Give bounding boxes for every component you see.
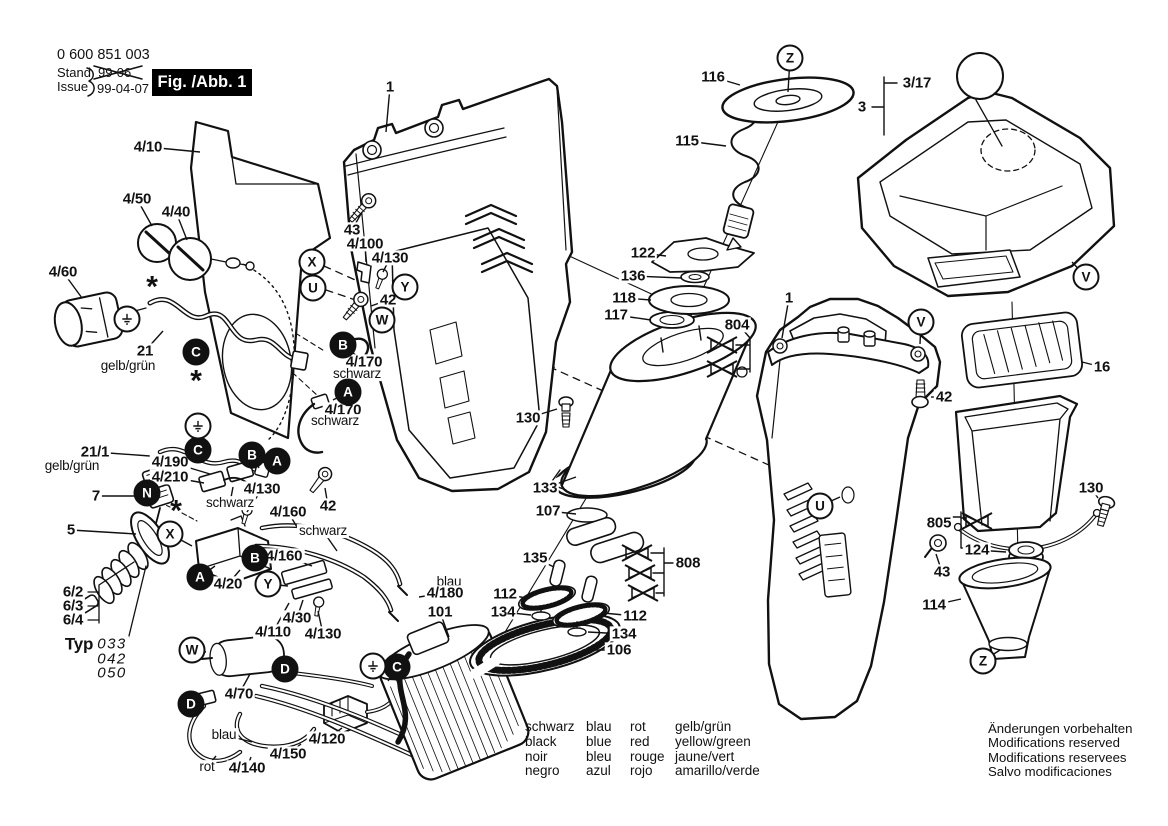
part-label: 1 (783, 290, 795, 305)
figure-badge: Fig. /Abb. 1 (152, 69, 252, 96)
part-label: 106 (605, 642, 633, 657)
legend-cell: rouge (630, 750, 665, 765)
part-label: 130 (1077, 480, 1105, 495)
part-label: 115 (673, 133, 701, 148)
part-label: 4/150 (268, 746, 309, 761)
part-label: 4/60 (47, 264, 79, 279)
part-label: 101 (426, 604, 454, 619)
part-label: 4/120 (307, 731, 348, 746)
legend-cell: amarillo/verde (675, 764, 760, 779)
legend-cell: gelb/grün (675, 720, 760, 735)
callout-circle-u: U (300, 275, 327, 302)
legend-cell: rojo (630, 764, 665, 779)
callout-circle-y: Y (392, 274, 419, 301)
legend-column: rotredrougerojo (630, 720, 665, 779)
callout-circle-b: B (239, 442, 266, 469)
callout-circle-d: D (272, 656, 299, 683)
part-label: 033 (95, 636, 129, 651)
legend-column: blaubluebleuazul (586, 720, 612, 779)
part-label: 130 (514, 410, 542, 425)
part-label: 4/110 (253, 624, 293, 639)
part-label: 117 (602, 307, 630, 322)
part-label: 4/130 (242, 481, 283, 496)
part-label: 16 (1092, 359, 1112, 374)
callout-circle-u: U (807, 493, 834, 520)
part-label: 4/50 (121, 191, 153, 206)
part-label: 1 (384, 79, 396, 94)
part-label: 4/40 (160, 204, 192, 219)
obsolete-mark (625, 565, 655, 581)
legend-cell: noir (525, 750, 575, 765)
part-label: 116 (699, 69, 727, 84)
part-label: 4/10 (132, 139, 164, 154)
part-label: 7 (90, 488, 102, 503)
callout-circle-a: A (264, 448, 291, 475)
leader-lines-layer (0, 0, 1168, 826)
part-label: * (190, 366, 201, 397)
part-label: rot (197, 760, 216, 774)
obsolete-mark (962, 513, 992, 529)
part-label: gelb/grün (99, 359, 158, 373)
callout-circle-c: C (384, 654, 411, 681)
callout-circle-b: B (330, 332, 357, 359)
part-label: 4/180 (425, 585, 466, 600)
ground-icon (185, 413, 212, 440)
part-label: 050 (95, 665, 129, 680)
legend-cell: blau (586, 720, 612, 735)
callout-circle-a: A (335, 379, 362, 406)
part-label: 112 (491, 586, 519, 601)
part-label: schwarz (331, 367, 383, 381)
part-label: 114 (920, 597, 948, 612)
issue-block: Stand Issue (57, 66, 91, 94)
legend-column: gelb/grünyellow/greenjaune/vertamarillo/… (675, 720, 760, 779)
callout-circle-v: V (908, 309, 935, 336)
notice-line: Änderungen vorbehalten (988, 722, 1132, 736)
color-legend: schwarzblacknoirnegroblaubluebleuazulrot… (525, 720, 785, 782)
callout-circle-c: C (185, 437, 212, 464)
part-number: 0 600 851 003 (57, 47, 150, 63)
part-label: * (146, 272, 157, 303)
part-label: 133 (531, 480, 559, 495)
part-label: 135 (521, 550, 549, 565)
ground-icon (360, 653, 387, 680)
part-label: 4/140 (227, 760, 268, 775)
part-label: 5 (65, 522, 77, 537)
callout-circle-z: Z (777, 45, 804, 72)
part-label: 4/130 (370, 250, 411, 265)
obsolete-mark (707, 337, 737, 353)
part-label: 4/160 (268, 504, 309, 519)
part-label: 112 (621, 608, 649, 623)
callout-circle-w: W (179, 637, 206, 664)
part-label: 134 (610, 626, 638, 641)
part-label: 124 (963, 542, 991, 557)
legend-cell: negro (525, 764, 575, 779)
obsolete-mark (622, 545, 652, 561)
notice-line: Salvo modificaciones (988, 765, 1132, 779)
part-label: 808 (674, 555, 702, 570)
diagram-stage: 0 600 851 003 Stand Issue 99-06 99-04-07… (0, 0, 1168, 826)
callout-circle-a: A (187, 564, 214, 591)
notice-block: Änderungen vorbehaltenModifications rese… (988, 722, 1132, 779)
part-label: 43 (932, 564, 952, 579)
notice-line: Modifications reserved (988, 736, 1132, 750)
part-label: 4/160 (264, 548, 305, 563)
part-label: 3/17 (901, 75, 933, 90)
part-label: 4/130 (303, 626, 344, 641)
callout-circle-n: N (134, 480, 161, 507)
callout-circle-y: Y (255, 571, 282, 598)
notice-line: Modifications reservees (988, 751, 1132, 765)
legend-cell: red (630, 735, 665, 750)
part-label: Typ (63, 635, 95, 652)
part-label: 4/70 (223, 686, 255, 701)
part-label: 136 (619, 268, 647, 283)
legend-cell: bleu (586, 750, 612, 765)
part-label: gelb/grün (43, 459, 102, 473)
part-label: schwarz (297, 524, 349, 538)
legend-cell: yellow/green (675, 735, 760, 750)
part-label: 107 (534, 503, 562, 518)
callout-circle-v: V (1073, 264, 1100, 291)
part-label: schwarz (204, 496, 256, 510)
legend-cell: azul (586, 764, 612, 779)
part-label: 122 (629, 245, 657, 260)
legend-cell: schwarz (525, 720, 575, 735)
part-label: 3 (856, 99, 868, 114)
part-label: 6/4 (61, 612, 85, 627)
part-label: 42 (318, 498, 338, 513)
ground-icon (114, 306, 141, 333)
part-label: 4/20 (212, 576, 244, 591)
callout-circle-d: D (178, 691, 205, 718)
callout-circle-x: X (157, 521, 184, 548)
obsolete-mark (628, 585, 658, 601)
legend-cell: jaune/vert (675, 750, 760, 765)
callout-circle-c: C (183, 339, 210, 366)
leader-line (71, 530, 136, 534)
callout-circle-z: Z (970, 648, 997, 675)
part-label: 804 (723, 317, 751, 332)
legend-cell: black (525, 735, 575, 750)
legend-column: schwarzblacknoirnegro (525, 720, 575, 779)
part-label: 42 (934, 389, 954, 404)
old-issue-date: 99-06 (98, 65, 131, 80)
part-label: 21 (135, 343, 155, 358)
callout-circle-b: B (242, 545, 269, 572)
callout-circle-w: W (369, 307, 396, 334)
issue-label: Issue (57, 80, 91, 94)
obsolete-mark (707, 361, 737, 377)
legend-cell: blue (586, 735, 612, 750)
callout-circle-x: X (299, 249, 326, 276)
stand-label: Stand (57, 66, 91, 80)
issue-date: 99-04-07 (97, 81, 149, 96)
part-label: 118 (610, 290, 638, 305)
part-label: 134 (489, 604, 517, 619)
part-label: schwarz (309, 414, 361, 428)
part-label: blau (210, 728, 239, 742)
part-label: 4/190 (150, 454, 191, 469)
part-label: 805 (925, 515, 953, 530)
legend-cell: rot (630, 720, 665, 735)
